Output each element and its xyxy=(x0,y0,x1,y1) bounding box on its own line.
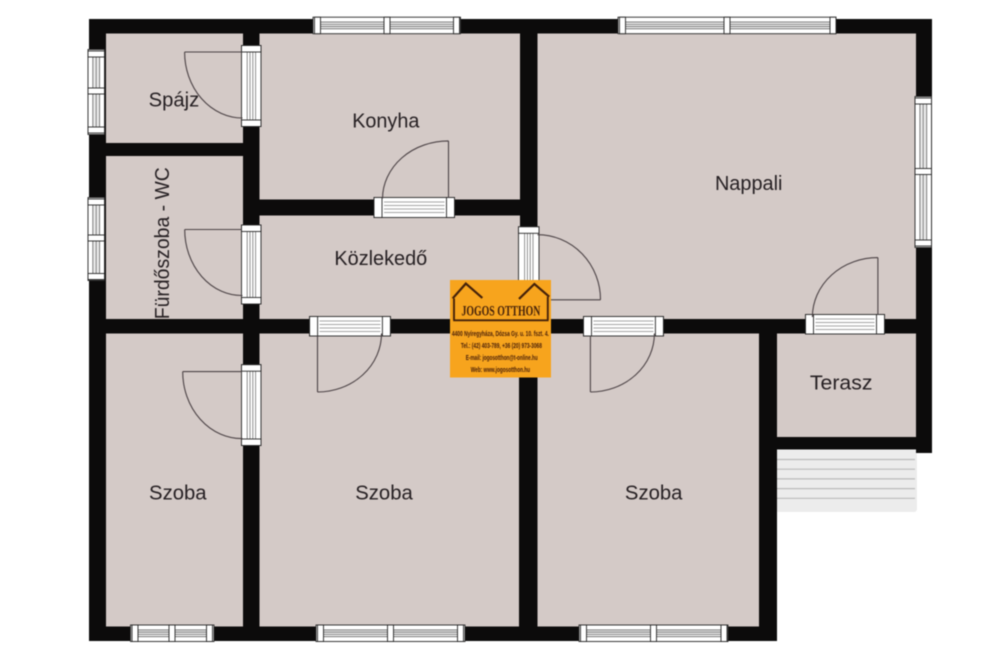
svg-text:Konyha: Konyha xyxy=(352,111,420,133)
svg-text:Tel.: (42) 403-789, +36 (20): Tel.: (42) 403-789, +36 (20) 973-3068 xyxy=(461,343,542,350)
svg-text:4400 Nyíregyháza, Dózsa Gy. u.: 4400 Nyíregyháza, Dózsa Gy. u. 10. fszt.… xyxy=(452,331,549,338)
svg-text:Közlekedő: Közlekedő xyxy=(334,248,427,270)
svg-text:Web: www.jogosotthon.hu: Web: www.jogosotthon.hu xyxy=(471,367,530,374)
svg-text:Fürdőszoba - WC: Fürdőszoba - WC xyxy=(152,167,174,319)
svg-text:Terasz: Terasz xyxy=(810,373,873,395)
svg-text:E-mail: jogosotthon@t-online.: E-mail: jogosotthon@t-online.hu xyxy=(466,355,538,362)
svg-text:Szoba: Szoba xyxy=(625,482,683,504)
svg-text:Nappali: Nappali xyxy=(715,173,783,195)
svg-text:Spájz: Spájz xyxy=(149,90,200,112)
svg-text:Szoba: Szoba xyxy=(355,482,413,504)
svg-text:JOGOS OTTHON: JOGOS OTTHON xyxy=(462,303,541,319)
svg-text:Szoba: Szoba xyxy=(149,482,207,504)
